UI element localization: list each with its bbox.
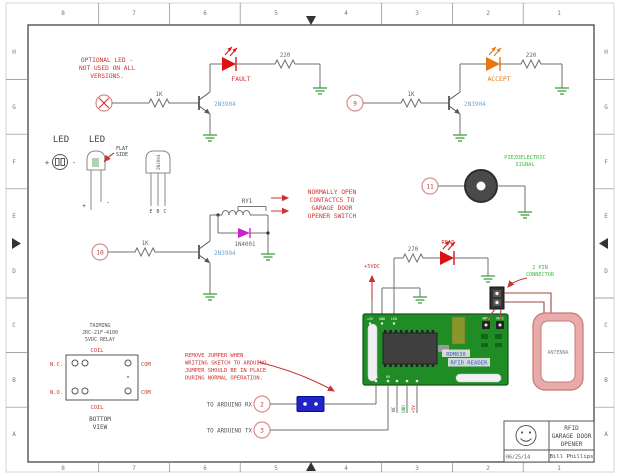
- smiley-eye: [521, 431, 523, 433]
- transistor-name: 2N3904: [214, 250, 236, 257]
- relay-mark: [127, 376, 129, 378]
- board-pin: [381, 322, 383, 324]
- npn-transistor-symbol: [449, 92, 460, 114]
- zone-row: B: [604, 377, 608, 384]
- board-pin: [387, 380, 390, 383]
- connector-note: 2 PIN: [532, 265, 548, 271]
- no-label: N.O.: [50, 390, 63, 396]
- ground-symbol: [203, 135, 217, 141]
- zone-row: C: [604, 322, 608, 329]
- npn-transistor-symbol: [199, 241, 210, 263]
- board-pin: [375, 380, 378, 383]
- relay-pin: [125, 388, 131, 394]
- board-pin: [369, 322, 371, 324]
- drawing-author: Bill Phillips: [550, 454, 594, 460]
- legend-led-label: LED: [53, 135, 69, 145]
- resistor-value: 1K: [408, 92, 415, 98]
- antenna-label: ANTENNA: [547, 350, 568, 356]
- pin-number: 2: [260, 402, 264, 409]
- board-silk-text: RDM630: [446, 352, 465, 358]
- com-label: COM: [141, 390, 151, 396]
- jumper-note: REMOVE JUMPER WHEN: [185, 353, 243, 359]
- title-block: 06/25/14 RFID GARAGE DOOR OPENER Bill Ph…: [504, 421, 594, 462]
- zone-col: 4: [344, 465, 348, 472]
- rfid-reader-section: +5VDC 270 READ RDM630 RFID READER: [363, 240, 583, 413]
- zone-col: 7: [132, 465, 136, 472]
- ground-symbol: [518, 212, 532, 218]
- reader-board: RDM630 RFID READER +5V GND LED ANT1 ANT2…: [363, 314, 508, 385]
- relay-bottom-view: TAIMING JRC-21F-4100 5VDC RELAY COIL N.C…: [50, 323, 151, 431]
- led-name: READ: [442, 240, 455, 246]
- pad-block: [481, 334, 488, 339]
- stub-pin-label: NC: [391, 406, 397, 412]
- supply-label: +5VDC: [364, 264, 380, 270]
- jumper-pin: [314, 402, 318, 406]
- drawing-title: GARAGE DOOR: [552, 433, 592, 440]
- led-name: FAULT: [231, 75, 250, 83]
- resistor-value: 220: [526, 53, 537, 59]
- board-pin-label: GND: [379, 317, 385, 321]
- relay-pin: [82, 360, 88, 366]
- jumper-note: DURING NORMAL OPERATION.: [185, 376, 263, 382]
- led-chip: [56, 159, 60, 166]
- relay-note: GARAGE DOOR: [312, 205, 353, 212]
- center-arrow-right: [599, 238, 608, 249]
- jumper-pin: [303, 402, 307, 406]
- package-name: 2N3904: [156, 154, 162, 170]
- piezo-note: SIGNAL: [515, 162, 534, 168]
- fault-note: VERSIONS.: [90, 73, 124, 80]
- coil-label: COIL: [91, 348, 104, 354]
- crystal-component: [368, 324, 377, 381]
- zone-row: A: [604, 431, 608, 438]
- flat-side-arrow: [105, 153, 115, 162]
- board-slot: [456, 374, 501, 382]
- zone-row: F: [604, 159, 608, 166]
- npn-transistor-symbol: [199, 92, 210, 114]
- jumper-note: WRITING SKETCH TO ARDUINO.: [185, 361, 269, 367]
- zone-row: E: [12, 213, 16, 220]
- pad-block: [481, 343, 488, 347]
- inductor-component: [452, 317, 465, 344]
- resistor-symbol: [146, 99, 172, 107]
- board-pin: [485, 324, 488, 327]
- polarity-minus: -: [72, 159, 76, 167]
- resistor-symbol: [132, 248, 158, 256]
- polarity-plus: +: [45, 159, 49, 167]
- resistor-value: 1K: [156, 92, 163, 98]
- jumper-block: [297, 397, 324, 412]
- fault-note: NOT USED ON ALL: [79, 65, 135, 72]
- pin-number: 3: [260, 428, 264, 435]
- rx-label: TO ARDUINO RX: [207, 403, 253, 409]
- led-chip: [61, 159, 65, 166]
- board-pin-label: LED: [391, 317, 397, 321]
- zone-row: C: [12, 322, 16, 329]
- board-pin: [396, 380, 399, 383]
- resistor-value: 220: [280, 53, 291, 59]
- resistor-symbol: [400, 254, 426, 262]
- resistor-symbol: [272, 60, 298, 68]
- ground-symbol: [481, 276, 495, 282]
- connector-arrow: [508, 278, 527, 287]
- view-caption: VIEW: [93, 424, 108, 431]
- jumper-arrow: [258, 362, 334, 391]
- zone-col: 7: [132, 10, 136, 17]
- led-symbol-fault: [222, 47, 237, 71]
- piezo-buzzer-hole: [477, 182, 486, 191]
- coil-label: COIL: [91, 405, 104, 411]
- connector-pin: [495, 301, 498, 304]
- led-legend: LED LED + - + - FLAT SIDE 2N3904 E B C: [45, 135, 170, 215]
- drawing-date: 06/25/14: [506, 455, 530, 461]
- nc-label: N.C.: [50, 362, 63, 368]
- zone-row: D: [12, 268, 16, 275]
- zone-col: 3: [415, 10, 419, 17]
- fault-circuit: OPTIONAL LED - NOT USED ON ALL VERSIONS.…: [79, 47, 327, 141]
- zone-col: 4: [344, 10, 348, 17]
- polarity-plus: +: [82, 203, 86, 210]
- zone-col: 8: [61, 10, 65, 17]
- border-top-columns: 8 7 6 5 4 3 2 1: [61, 10, 561, 17]
- resistor-value: 1K: [142, 241, 149, 247]
- pin-number: 10: [96, 250, 104, 257]
- zone-row: B: [12, 377, 16, 384]
- ground-symbol: [555, 88, 569, 94]
- schematic-sheet: 8 7 6 5 4 3 2 1 8 7 6 5 4 3 2 1 H G F E …: [0, 0, 620, 475]
- zone-col: 5: [274, 10, 278, 17]
- diode-value: 1N4001: [235, 242, 256, 248]
- center-arrow-top: [306, 16, 316, 25]
- zone-col: 8: [61, 465, 65, 472]
- relay-note: OPENER SWITCH: [308, 213, 357, 220]
- pad-block: [495, 343, 502, 347]
- zone-col: 2: [486, 10, 490, 17]
- relay-note: CONTACTCS TO: [310, 197, 355, 204]
- relay-note: NORMALLY OPEN: [308, 189, 357, 196]
- relay-part-text: JRC-21F-4100: [82, 330, 118, 336]
- board-pin-label: RX: [386, 375, 390, 379]
- relay-part-text: 5VDC RELAY: [85, 337, 115, 343]
- led-die: [92, 158, 99, 167]
- ground-symbol: [453, 135, 467, 141]
- stub-pin-label: GND: [401, 405, 407, 413]
- drawing-title: OPENER: [561, 441, 583, 448]
- resistor-value: 270: [408, 247, 419, 253]
- jumper-note: JUMPER SHOULD BE IN PLACE: [185, 368, 266, 374]
- junction-dot: [266, 231, 269, 234]
- zone-row: E: [604, 213, 608, 220]
- zone-row: A: [12, 431, 16, 438]
- ground-symbol: [261, 254, 275, 260]
- connector-note: CONNECTOR: [526, 272, 555, 278]
- pin-label-b: B: [157, 209, 160, 215]
- zone-col: 3: [415, 465, 419, 472]
- diode-symbol-1n4001: [238, 228, 250, 238]
- zone-col: 6: [203, 465, 207, 472]
- board-pin-label: +5V: [367, 317, 373, 321]
- polarity-minus: -: [106, 199, 110, 206]
- stub-pin-label: +5V: [411, 405, 417, 413]
- ground-symbol: [413, 297, 427, 303]
- legend-led-label: LED: [89, 135, 105, 145]
- board-pin-label: TX: [374, 375, 378, 379]
- zone-row: G: [604, 104, 608, 111]
- zone-row: F: [12, 159, 16, 166]
- board-pin: [499, 324, 502, 327]
- relay-pin: [72, 360, 78, 366]
- relay-ref: RY1: [242, 199, 253, 205]
- relay-part-text: TAIMING: [89, 323, 110, 329]
- fault-note: OPTIONAL LED -: [81, 57, 133, 64]
- center-arrow-left: [12, 238, 21, 249]
- com-label: COM: [141, 362, 151, 368]
- resistor-symbol: [398, 99, 424, 107]
- resistor-symbol: [518, 60, 544, 68]
- board-pin: [416, 380, 419, 383]
- pin-number: 11: [426, 184, 434, 191]
- relay-circuit: 10 1K 2N3904 1N4001 RY1 NORMALLY OPEN CO…: [92, 189, 356, 300]
- accept-circuit: 9 1K 2N3904 ACCEPT 220: [347, 47, 569, 141]
- zone-col: 6: [203, 10, 207, 17]
- relay-pin: [72, 388, 78, 394]
- tx-label: TO ARDUINO TX: [207, 429, 253, 435]
- board-pin: [393, 322, 395, 324]
- drawing-title: RFID: [564, 425, 579, 432]
- view-caption: BOTTOM: [89, 416, 111, 423]
- ground-symbol: [203, 294, 217, 300]
- pin-number: 9: [353, 101, 357, 108]
- zone-row: H: [12, 49, 16, 56]
- zone-col: 2: [486, 465, 490, 472]
- relay-pin: [82, 388, 88, 394]
- ground-symbol: [313, 88, 327, 94]
- flat-side-label: SIDE: [116, 152, 128, 158]
- center-arrow-bottom: [306, 462, 316, 471]
- zone-col: 5: [274, 465, 278, 472]
- pin-label-e: E: [150, 209, 153, 215]
- led-top-view-icon: [53, 155, 68, 170]
- board-pin: [406, 380, 409, 383]
- transistor-name: 2N3904: [214, 101, 236, 108]
- arduino-connections: REMOVE JUMPER WHEN WRITING SKETCH TO ARD…: [185, 353, 388, 438]
- pin-label-c: C: [164, 209, 167, 215]
- pad-block: [495, 334, 502, 339]
- relay-pin: [125, 360, 131, 366]
- zone-col: 1: [557, 10, 561, 17]
- zone-row: D: [604, 268, 608, 275]
- zone-row: G: [12, 104, 16, 111]
- zone-col: 1: [557, 465, 561, 472]
- piezo-note: PIEZOELECTRIC: [504, 155, 545, 161]
- connector-pin: [495, 292, 498, 295]
- ic-chip: [383, 333, 437, 364]
- piezo-circuit: 11 PIEZOELECTRIC SIGNAL: [422, 155, 546, 218]
- led-name: ACCEPT: [487, 75, 510, 83]
- transistor-name: 2N3904: [464, 101, 486, 108]
- board-silk-text: RFID READER: [450, 361, 488, 367]
- led-symbol-accept: [486, 47, 501, 71]
- zone-row: H: [604, 49, 608, 56]
- smiley-eye: [529, 431, 531, 433]
- relay-coil-symbol: [222, 211, 250, 216]
